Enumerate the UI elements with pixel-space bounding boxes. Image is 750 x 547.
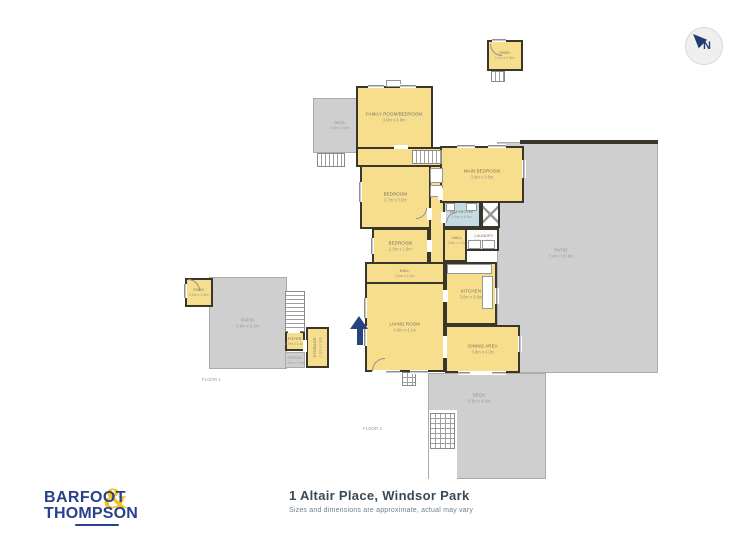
room-label: MAIN BEDROOM 3.8m x 3.6m [464, 169, 500, 181]
room-label: FAMILY ROOM/BEDROOM 3.9m x 4.8m [366, 112, 422, 124]
door-gap [443, 336, 447, 358]
room-label: HALL 4.6m x 1.0m [395, 268, 415, 278]
window [518, 336, 522, 352]
window [183, 284, 187, 298]
interior-stairs [412, 150, 442, 164]
room-name: HALL [395, 268, 415, 273]
room-dims: 4.6m x 1.0m [395, 273, 415, 278]
window [368, 84, 384, 88]
kitchen-counter [482, 276, 493, 309]
lower-patio-area: PATIO 4.8m x 4.1m [209, 277, 287, 369]
room-label: BEDROOM 2.6m x 1.9m [389, 240, 413, 252]
room-dims: 3.0m x 3.8m [458, 295, 484, 301]
room-storage: STORAGE 1.1m x 2.9m [306, 327, 329, 368]
room-dims: 5.3m x 4.6m [457, 399, 501, 405]
room-label: PATIO 7.4m x 10.6m [534, 248, 589, 260]
patio-boundary-wall [520, 140, 658, 144]
room-label: KITCHEN 3.0m x 3.8m [458, 289, 484, 301]
room-dims: 2.1m x 1.8m [495, 56, 515, 61]
room-dims: 2.0m x 1.9m [189, 293, 209, 298]
wardrobe [430, 168, 443, 183]
window [363, 298, 367, 318]
door-gap [443, 290, 448, 302]
room-label: DECK 3.0m x 2.5m [330, 120, 350, 130]
room-hall: HALL 4.6m x 1.0m [365, 262, 445, 284]
floor1-label: FLOOR 1 [202, 377, 221, 382]
window [488, 144, 506, 148]
room-name: DINING AREA [468, 343, 498, 349]
window [363, 326, 367, 346]
room-dims: 2.0m x 1.1m [285, 341, 305, 346]
room-dims: 2.6m x 1.9m [389, 246, 413, 252]
entry-arrow-stem [357, 328, 363, 345]
window [492, 38, 506, 42]
floor1-stairs [285, 291, 305, 332]
room-label: HALL 2.6m x 1.0m [447, 235, 466, 245]
room-label: PATIO 4.8m x 4.1m [237, 317, 260, 329]
room-name: PATIO [237, 317, 260, 323]
room-bedroom2: BEDROOM 2.6m x 1.9m [372, 228, 429, 264]
room-dims: 1.1m x 2.9m [318, 337, 323, 358]
room-label: PORCH 2.0m x 1.0m [285, 355, 305, 365]
room-label: DECK 5.3m x 4.6m [457, 393, 501, 405]
window [410, 370, 428, 374]
window [495, 288, 499, 304]
room-label: STORAGE 1.1m x 2.9m [312, 337, 322, 358]
room-family: FAMILY ROOM/BEDROOM 3.9m x 4.8m [356, 86, 433, 149]
washer [468, 240, 481, 249]
floor2-label: FLOOR 2 [363, 426, 382, 431]
room-dims: 3.9m x 4.8m [366, 118, 422, 124]
room-dims: 7.4m x 10.6m [534, 254, 589, 260]
porch-steps [402, 372, 416, 386]
room-name: STORAGE [312, 337, 317, 358]
compass-north-label: N [703, 40, 711, 52]
vanity [466, 203, 477, 211]
room-main-bedroom: MAIN BEDROOM 3.8m x 3.6m [440, 146, 524, 203]
room-label: DINING AREA 3.8m x 4.2m [468, 343, 498, 355]
floorplan: N DECK 3.0m x 2.5m PATIO 7.4m x 10.6m DE… [0, 0, 750, 547]
room-dims: 2.7m x 3.6m [384, 197, 408, 203]
room-name: BEDROOM [384, 191, 408, 197]
room-name: LIVING ROOM [390, 321, 421, 327]
door-gap [470, 371, 492, 375]
deck-stairs [430, 413, 455, 449]
shed-steps [491, 71, 505, 82]
room-dims: 4.8m x 4.1m [390, 327, 421, 333]
room-dims: 2.0m x 1.0m [285, 360, 305, 365]
deck-steps [317, 153, 345, 167]
dryer [482, 240, 495, 249]
window [358, 182, 362, 202]
room-bedroom1: BEDROOM 2.7m x 3.6m [360, 165, 431, 229]
kitchen-counter [447, 264, 492, 274]
room-dims: 4.8m x 4.1m [237, 323, 260, 329]
room-dims: 2.6m x 1.0m [447, 241, 466, 246]
door-gap [438, 188, 443, 200]
room-name: BEDROOM [389, 240, 413, 246]
brand-name-bottom: THOMPSON [44, 505, 138, 523]
brand-tagline-rule [75, 524, 119, 526]
room-dining: DINING AREA 3.8m x 4.2m [445, 325, 520, 373]
room-name: FOYER [285, 336, 305, 341]
room-dims: 3.8m x 3.6m [464, 175, 500, 181]
window [400, 84, 416, 88]
compass: N [685, 27, 723, 65]
room-living: LIVING ROOM 4.8m x 4.1m [365, 282, 445, 372]
chimney [386, 80, 401, 87]
property-address: 1 Altair Place, Windsor Park [289, 488, 469, 503]
room-hall-upper: HALL 2.6m x 1.0m [443, 228, 467, 262]
room-foyer: FOYER 2.0m x 1.1m [285, 331, 305, 351]
toilet [446, 203, 455, 211]
window [522, 160, 526, 178]
room-label: LIVING ROOM 4.8m x 4.1m [390, 321, 421, 333]
room-dims: 3.0m x 2.5m [330, 126, 350, 131]
door-gap [427, 208, 432, 220]
window [370, 238, 374, 254]
door-gap [394, 145, 408, 149]
room-name: PORCH [285, 355, 305, 360]
window [457, 144, 475, 148]
shower [481, 201, 500, 228]
porch-area: PORCH 2.0m x 1.0m [285, 352, 305, 368]
room-dims: 3.8m x 4.2m [468, 349, 498, 355]
door-gap [288, 329, 300, 333]
disclaimer-text: Sizes and dimensions are approximate, ac… [289, 507, 473, 514]
room-label: FOYER 2.0m x 1.1m [285, 336, 305, 346]
room-label: BEDROOM 2.7m x 3.6m [384, 191, 408, 203]
door-gap [303, 340, 307, 352]
door-gap [427, 240, 432, 252]
